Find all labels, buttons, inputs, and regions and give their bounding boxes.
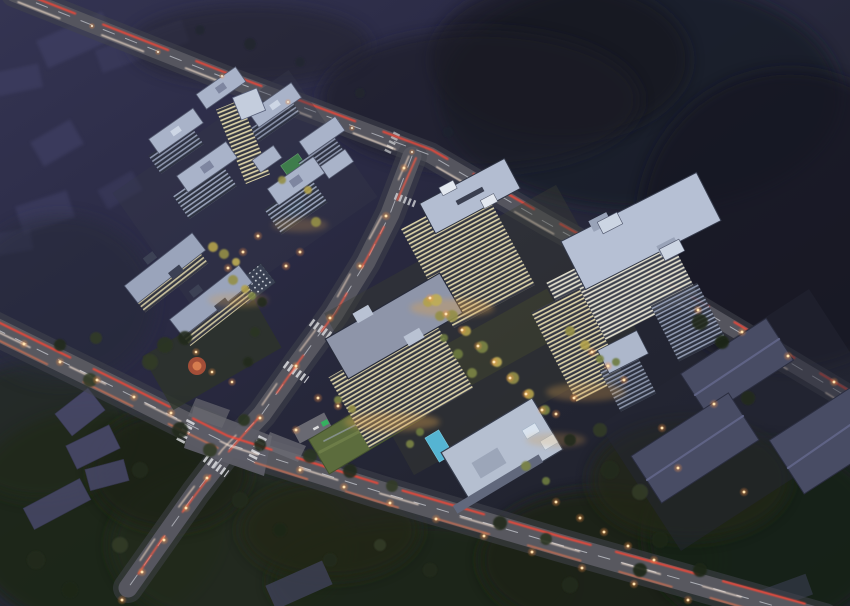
tree [542,477,550,485]
playground [193,362,202,371]
lamp-core [661,427,664,430]
street-lamp [505,373,515,383]
street-lamp [657,423,667,433]
lamp-core [743,491,746,494]
lamp-core [343,486,346,489]
lamp-core [555,501,558,504]
street-lamp [431,514,441,524]
lamp-core [591,351,594,354]
tree [208,242,218,252]
aerial-night-rendering [0,0,850,606]
lamp-core [96,379,99,382]
street-lamp [381,211,391,221]
tree [521,461,531,471]
lamp-core [607,365,610,368]
street-lamp [575,513,585,523]
lamp-core [163,539,166,542]
street-lamp [649,555,659,565]
street-lamp [527,547,537,557]
lamp-core [170,412,173,415]
tree [406,440,414,448]
street-lamp [117,595,127,605]
lamp-core [299,469,302,472]
street-lamp [441,309,451,319]
lamp-core [787,355,790,358]
lamp-core [141,571,144,574]
street-lamp [159,535,169,545]
street-lamp [291,361,301,371]
tree [238,414,250,426]
street-lamp [137,567,147,577]
tree [440,334,448,342]
tree [596,355,604,363]
lamp-core [541,409,544,412]
street-lamp [551,497,561,507]
tree [323,553,337,567]
lamp-core [653,559,656,562]
lamp-core [403,167,406,170]
tree [715,335,729,349]
street-lamp [829,377,839,387]
tree [244,38,256,50]
tree [741,391,755,405]
tree [593,423,607,437]
street-lamp [219,73,226,80]
lamp-core [741,331,744,334]
facade-glow [526,433,586,447]
tree [540,533,552,545]
tree [564,434,576,446]
lamp-core [91,25,93,27]
lamp-core [633,583,636,586]
lamp-core [359,265,362,268]
street-lamp [202,473,212,483]
lamp-core [23,343,26,346]
street-lamp [89,23,96,30]
tree [493,516,507,530]
tree [241,285,249,293]
tree [62,582,78,598]
street-lamp [285,99,292,106]
tree [142,354,158,370]
street-lamp [228,378,237,387]
lamp-core [389,502,392,505]
street-lamp [619,375,629,385]
tree [693,563,707,577]
tree [355,88,365,98]
street-lamp [295,465,305,475]
street-lamp [489,357,499,367]
tree [132,462,148,478]
street-lamp [739,487,749,497]
tree [311,217,321,227]
street-lamp [521,389,531,399]
street-lamp [333,401,343,411]
lamp-core [211,371,214,374]
street-lamp [623,541,633,551]
lamp-core [121,599,124,602]
street-lamp [355,261,365,271]
tree [219,249,229,259]
street-lamp [473,341,483,351]
street-lamp [577,563,587,573]
street-lamp [192,348,201,357]
tree [467,368,477,378]
street-lamp [385,498,395,508]
street-lamp [551,409,561,419]
street-lamp [673,463,683,473]
street-lamp [599,527,609,537]
street-lamp [683,595,693,605]
lamp-core [287,101,289,103]
tree [652,532,668,548]
lamp-core [697,309,700,312]
tree [633,563,647,577]
street-lamp [325,313,335,323]
lamp-core [285,265,288,268]
tree [343,464,357,478]
lamp-core [623,379,626,382]
tree [178,331,192,345]
lamp-core [59,361,62,364]
street-lamp [255,413,265,423]
tree [250,327,260,337]
street-lamp [569,393,579,403]
lamp-core [713,403,716,406]
lamp-core [385,215,388,218]
tree [443,127,453,137]
street-lamp [537,405,547,415]
tree [304,186,312,194]
tree [453,349,463,359]
tree [295,57,305,67]
street-lamp [166,408,176,418]
tree [348,405,356,413]
tree [232,492,248,508]
lamp-core [195,351,198,354]
lamp-core [461,329,464,332]
street-lamp [55,357,65,367]
tree [157,337,173,353]
tree [386,480,398,492]
street-lamp [238,247,248,257]
lamp-core [295,429,298,432]
tree [374,539,386,551]
tree [303,449,317,463]
lamp-core [445,313,448,316]
street-lamp [737,327,747,337]
street-lamp [92,375,102,385]
lamp-core [259,417,262,420]
lamp-core [833,381,836,384]
vegetation [320,30,640,170]
tree [612,358,620,366]
lamp-core [429,297,432,300]
lamp-core [221,75,223,77]
lamp-core [603,531,606,534]
lamp-core [299,251,302,254]
tree [278,176,286,184]
street-lamp [425,293,435,303]
lamp-core [133,396,136,399]
street-lamp [295,247,305,257]
street-lamp [291,425,301,435]
street-lamp [409,149,416,156]
tree [423,563,437,577]
street-lamp [349,125,356,132]
tree [195,25,205,35]
street-lamp [253,231,263,241]
tree [692,314,708,330]
lamp-core [509,377,512,380]
street-lamp [479,531,489,541]
street-lamp [629,579,639,589]
facade-glow [546,383,626,401]
tree [416,428,424,436]
street-lamp [129,392,139,402]
street-lamp [709,399,719,409]
lamp-core [477,345,480,348]
tree [257,297,267,307]
lamp-core [483,535,486,538]
street-lamp [181,503,191,513]
street-lamp [603,361,613,371]
tree [248,292,256,300]
street-lamp [208,368,217,377]
lamp-core [242,251,245,254]
lamp-core [573,397,576,400]
lamp-core [555,413,558,416]
lamp-core [677,467,680,470]
tree [112,537,128,553]
lamp-core [329,317,332,320]
tree [273,523,287,537]
tree [54,339,66,351]
lamp-core [525,393,528,396]
lamp-core [579,517,582,520]
facade-glow [344,413,440,431]
tree [243,357,253,367]
tree [172,422,188,438]
tree [90,332,102,344]
tree [203,443,217,457]
tree [27,551,45,569]
tree [565,326,575,336]
lamp-core [531,551,534,554]
lamp-core [493,361,496,364]
lamp-core [157,51,159,53]
tree [601,461,619,479]
tree [254,439,266,451]
street-lamp [399,163,409,173]
lamp-core [337,405,340,408]
street-lamp [223,263,233,273]
lamp-core [687,599,690,602]
street-lamp [587,347,597,357]
tree [632,484,648,500]
tree [562,577,578,593]
lamp-core [206,477,209,480]
street-lamp [783,351,793,361]
lamp-core [581,567,584,570]
lamp-core [317,397,320,400]
street-lamp [457,325,467,335]
street-lamp [313,393,323,403]
tree [232,258,240,266]
lamp-core [185,507,188,510]
lamp-core [227,267,230,270]
street-lamp [155,49,162,56]
street-lamp [281,261,291,271]
lamp-core [295,365,298,368]
tree [228,275,238,285]
screenshot [0,0,850,606]
lamp-core [257,235,260,238]
street-lamp [339,482,349,492]
lamp-core [411,151,413,153]
lamp-core [231,381,234,384]
lamp-core [627,545,630,548]
lamp-core [351,127,353,129]
street-lamp [693,305,703,315]
lamp-core [435,518,438,521]
street-lamp [19,339,29,349]
